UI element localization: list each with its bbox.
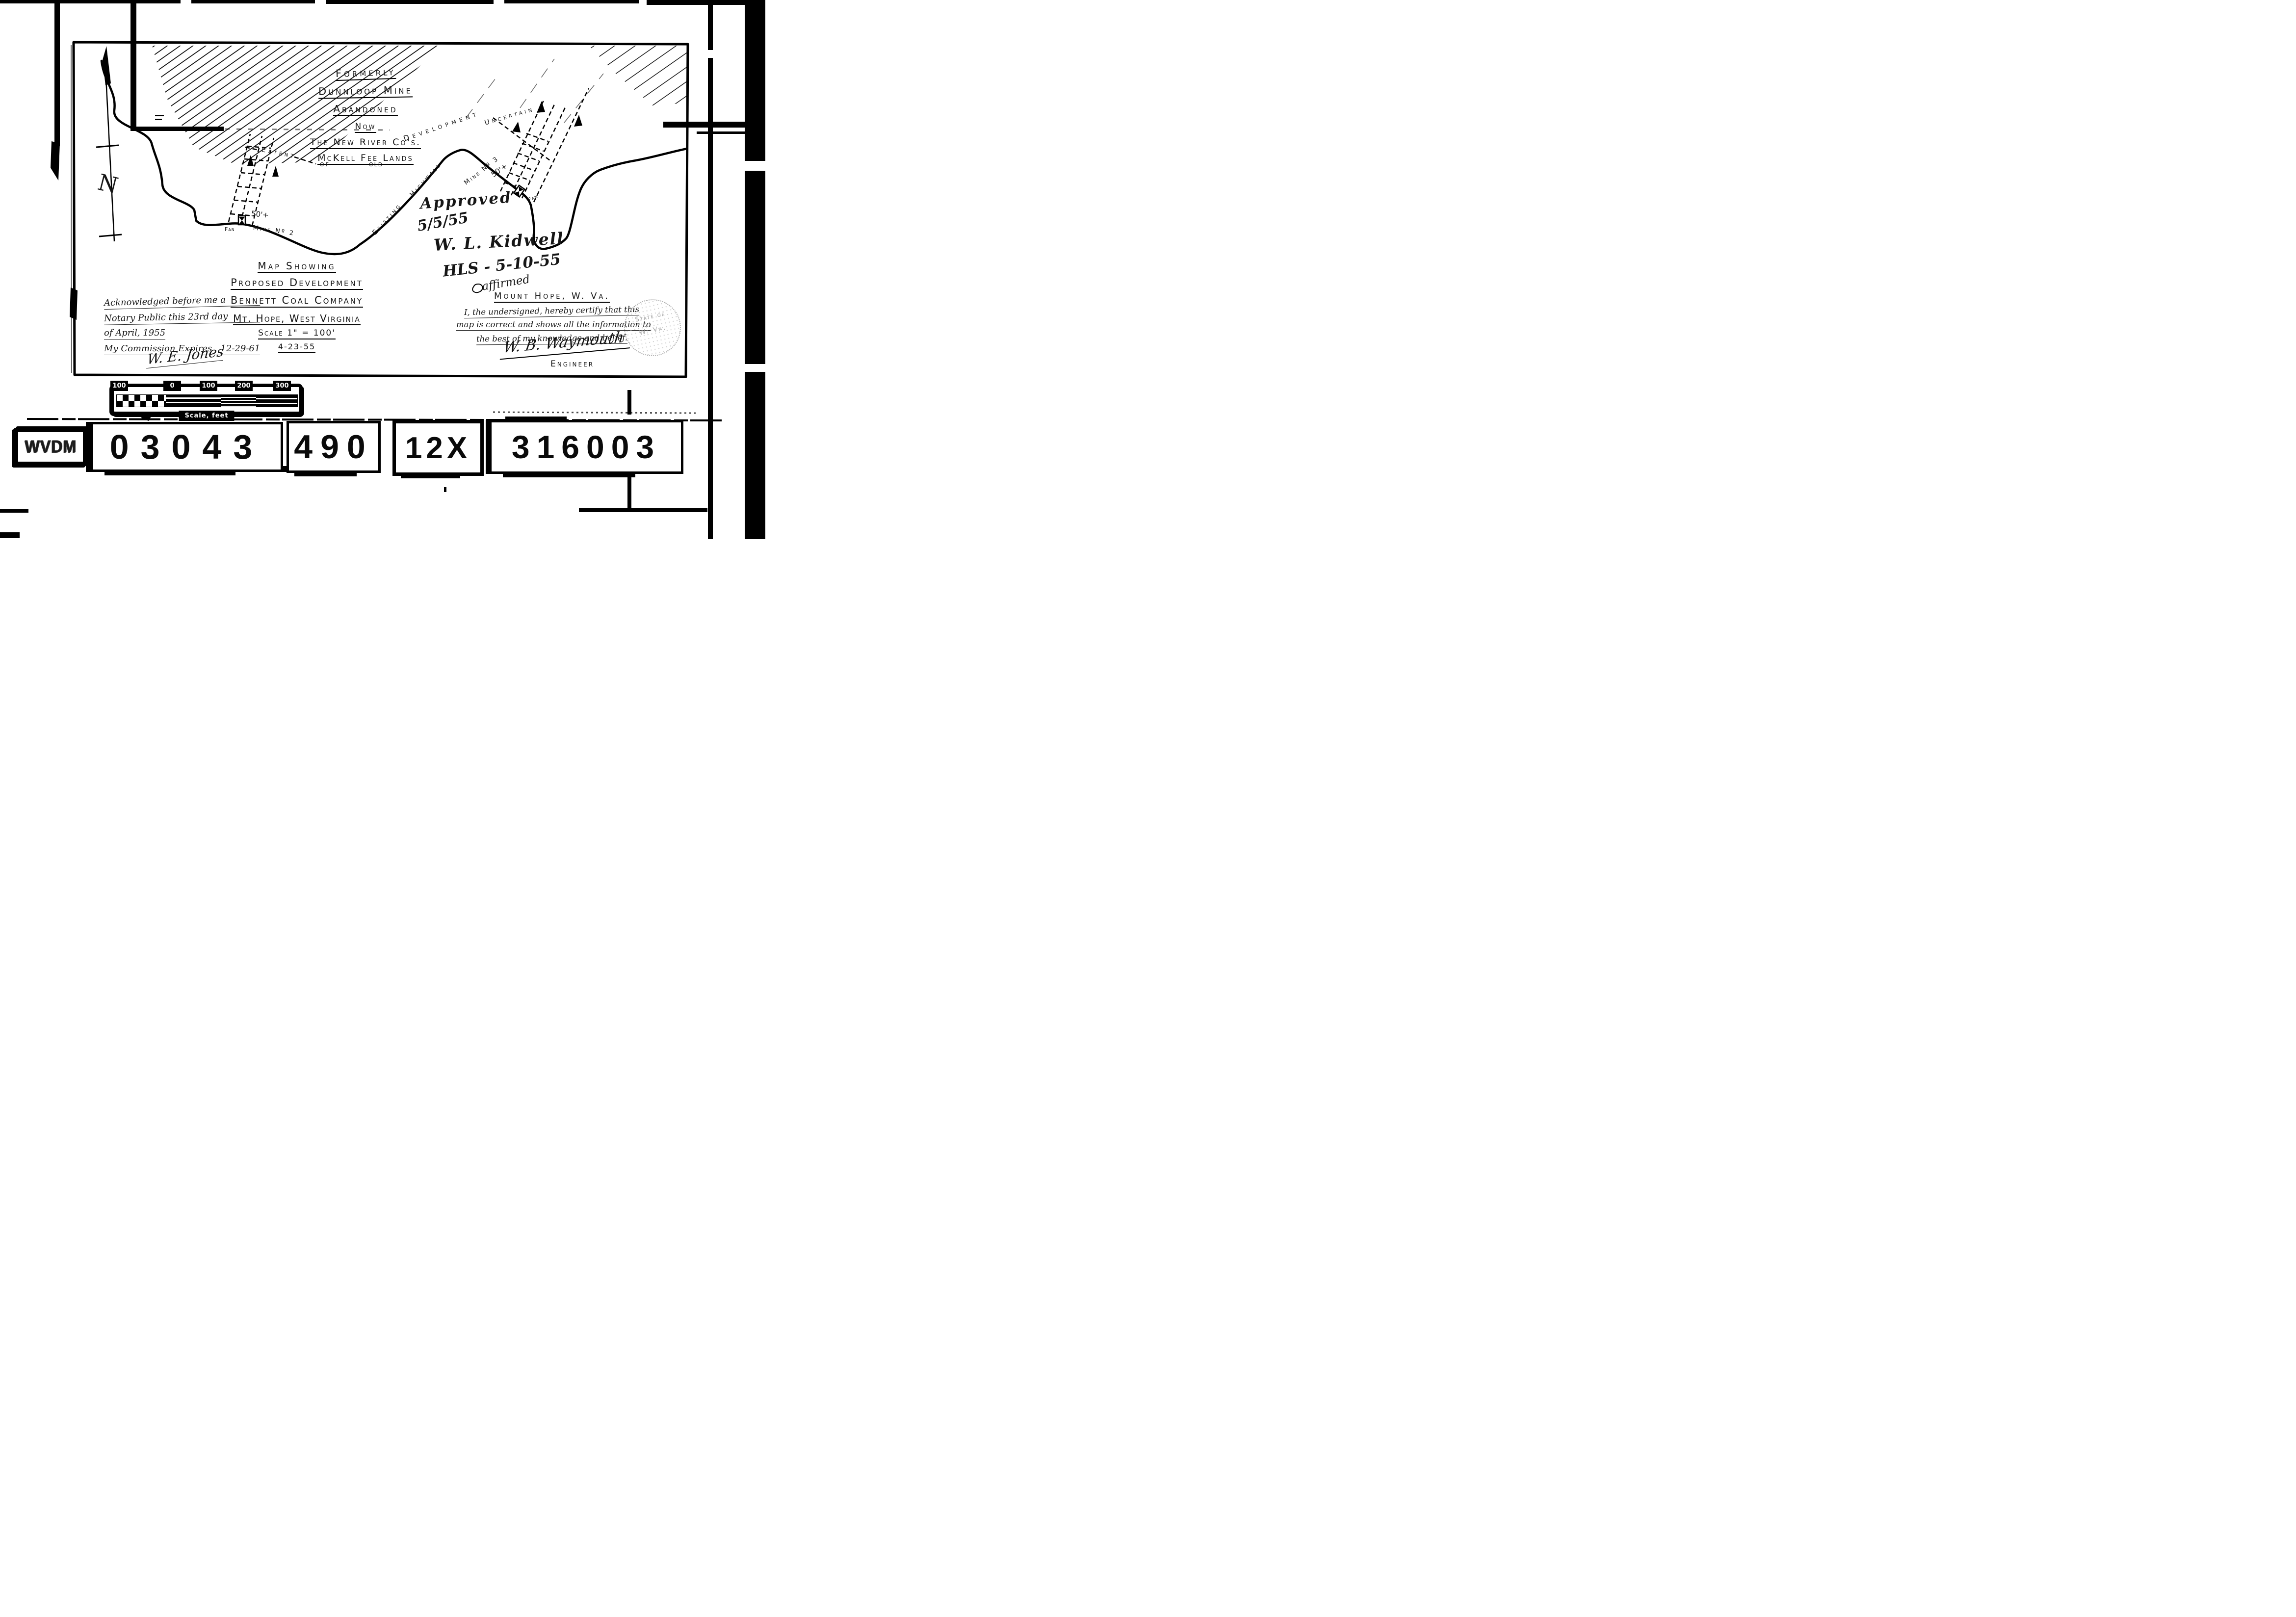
notary-line-2: Notary Public this 23rd day	[104, 311, 261, 325]
of-fragment: of	[320, 160, 330, 168]
mine2-depth-label: 50'+	[251, 210, 269, 219]
title-line-1: Map Showing	[258, 261, 336, 273]
id-card-3: 12X	[392, 420, 484, 476]
abandoned-line: Abandoned	[333, 104, 397, 116]
scale-caption: Scale, feet	[179, 411, 234, 421]
scale-tick-300: 300	[273, 381, 291, 391]
fan-symbol-mine2	[238, 216, 245, 225]
north-arrow	[96, 46, 122, 241]
scale-tick-100L: 100	[110, 381, 128, 391]
mine2-fan-label: Fan	[225, 227, 235, 232]
notary-block: Acknowledged before me a Notary Public t…	[104, 296, 260, 355]
cert-place: Mount Hope, W. Va.	[494, 292, 610, 303]
scale-tick-0: 0	[163, 381, 181, 391]
id-card-4: 316003	[486, 420, 683, 474]
scale-bar: 100 0 100 200 300 Scale, feet	[110, 384, 303, 415]
scale-tick-200: 200	[235, 381, 253, 391]
notary-line-3: of April, 1955	[104, 328, 165, 339]
engineer-title: Engineer	[550, 360, 594, 368]
scale-checker-segment	[117, 395, 166, 407]
old-fragment: old	[369, 160, 383, 168]
formerly-block: Formerly Dunnloop Mine Abandoned Now The…	[294, 68, 437, 165]
mine-3-arrows	[512, 101, 582, 132]
title-line-2: Proposed Development	[231, 278, 363, 290]
id-card-1: 03043	[86, 422, 283, 472]
scale-band-3	[256, 395, 297, 407]
wvdm-badge-inner: WVDM	[18, 432, 83, 462]
scale-tick-100R: 100	[200, 381, 217, 391]
now-line: Now	[355, 123, 376, 133]
title-line-5: Scale 1" = 100'	[258, 329, 336, 339]
mckell-line: McKell Fee Lands	[317, 154, 414, 165]
wvdm-badge-label: WVDM	[25, 437, 77, 457]
scanned-mine-map-page: N Formerly Dunnloop Mine Abandoned Now T…	[0, 0, 765, 539]
formerly-line: Formerly	[335, 67, 395, 81]
notary-line-1: Acknowledged before me a	[104, 294, 261, 310]
scale-bar-rule	[116, 394, 298, 407]
cert-line-1: I, the undersigned, hereby certify that …	[464, 305, 639, 318]
title-line-6: 4-23-55	[278, 343, 315, 353]
id-card-2: 490	[287, 421, 381, 473]
scale-band-1	[166, 395, 221, 407]
wvdm-badge: WVDM	[14, 428, 87, 466]
dunnloop-line: Dunnloop Mine	[318, 85, 413, 99]
scale-band-2	[221, 395, 256, 407]
